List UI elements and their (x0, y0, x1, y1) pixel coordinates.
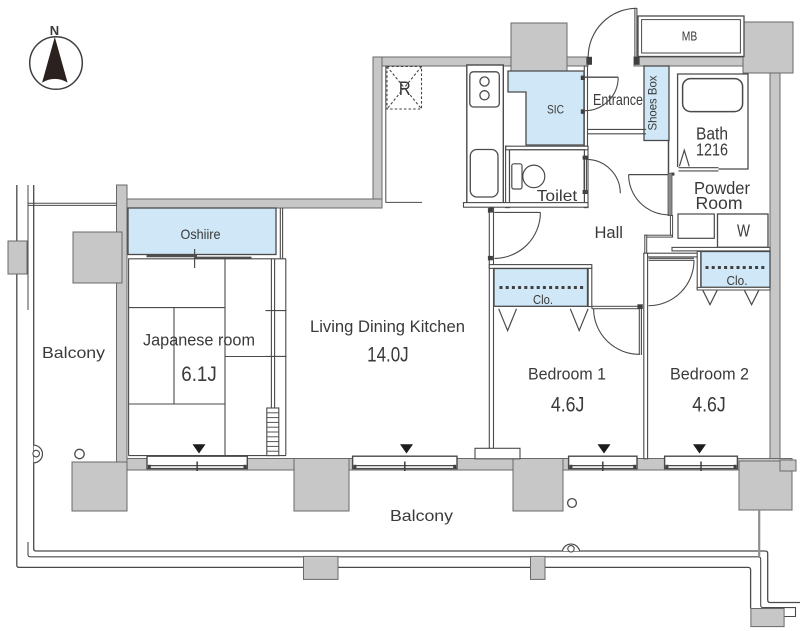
svg-text:W: W (737, 221, 750, 241)
svg-text:Entrance: Entrance (593, 92, 643, 109)
svg-text:Clo.: Clo. (533, 292, 553, 307)
svg-text:Room: Room (696, 193, 743, 213)
svg-text:Bedroom 2: Bedroom 2 (670, 366, 749, 384)
svg-text:1216: 1216 (696, 139, 728, 159)
svg-text:4.6J: 4.6J (551, 393, 585, 417)
svg-text:6.1J: 6.1J (181, 362, 217, 386)
svg-text:Oshiire: Oshiire (181, 226, 221, 242)
svg-text:Bedroom 1: Bedroom 1 (528, 365, 606, 383)
svg-text:4.6J: 4.6J (692, 393, 726, 417)
svg-text:Clo.: Clo. (727, 273, 748, 288)
svg-text:Balcony: Balcony (390, 508, 453, 525)
svg-text:Hall: Hall (594, 223, 623, 242)
svg-text:Balcony: Balcony (42, 345, 105, 362)
svg-text:SIC: SIC (547, 103, 564, 117)
svg-text:Japanese room: Japanese room (143, 331, 255, 349)
svg-text:14.0J: 14.0J (367, 343, 409, 367)
svg-text:N: N (50, 23, 59, 38)
svg-text:MB: MB (682, 29, 698, 44)
svg-text:R: R (399, 79, 411, 100)
svg-text:Shoes Box: Shoes Box (646, 76, 660, 131)
svg-text:Living Dining Kitchen: Living Dining Kitchen (310, 318, 465, 336)
